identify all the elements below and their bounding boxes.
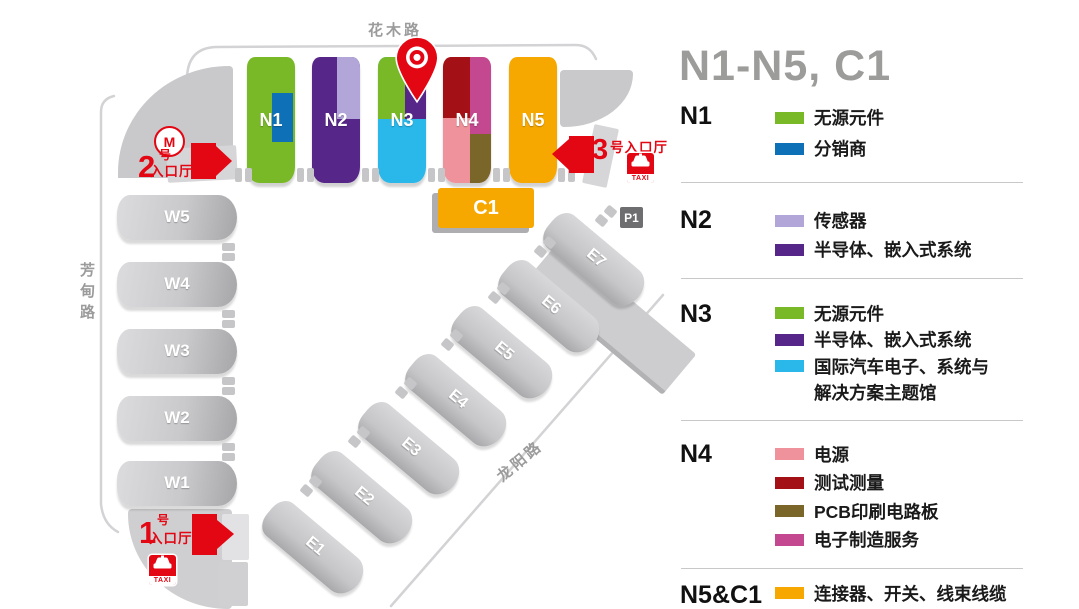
connector-tab xyxy=(245,168,252,182)
legend-items: 连接器、开关、线束线缆 xyxy=(775,581,1025,605)
connector-tab xyxy=(503,168,510,182)
legend-swatch-magenta xyxy=(775,534,804,546)
legend-hall-label: N5&C1 xyxy=(680,581,762,609)
legend-item: 传感器 xyxy=(775,206,1025,235)
taxi-label: TAXI xyxy=(149,576,176,585)
legend-swatch-darkred xyxy=(775,477,804,489)
connector-tab xyxy=(493,168,500,182)
legend-item-label: 分销商 xyxy=(814,136,867,161)
legend-hall-label: N3 xyxy=(680,300,712,329)
legend-item: 半导体、嵌入式系统 xyxy=(775,327,1025,354)
connector-tab xyxy=(222,253,235,261)
legend-item-label: 无源元件 xyxy=(814,301,884,326)
hall-e1-label: E1 xyxy=(264,503,364,591)
entrance2-hall-text: 入口厅 xyxy=(150,165,194,179)
connector-tab xyxy=(235,168,242,182)
legend-swatch-green xyxy=(775,112,804,124)
legend-item-label: 连接器、开关、线束线缆 xyxy=(814,581,1007,606)
legend-hall-label: N1 xyxy=(680,102,712,131)
legend-swatch-lightpurple xyxy=(775,215,804,227)
entrance2-suffix: 号 xyxy=(159,149,171,161)
legend-section-n2: N2传感器半导体、嵌入式系统 xyxy=(680,206,1025,264)
expo-map-page: 花木路 芳甸路 龙阳路 P1 C1 N1 N2 N3 N4 N5 xyxy=(0,0,1079,609)
hall-w1: W1 xyxy=(117,461,237,506)
legend-divider xyxy=(681,420,1023,421)
hall-w3: W3 xyxy=(117,329,237,374)
legend-item: PCB印刷电路板 xyxy=(775,497,1025,526)
legend-divider xyxy=(681,568,1023,569)
legend-swatch-blue xyxy=(775,143,804,155)
legend-swatch-darkpurple xyxy=(775,244,804,256)
legend-section-n5-c1: N5&C1连接器、开关、线束线缆 xyxy=(680,581,1025,605)
taxi-icon-entrance1: TAXI xyxy=(149,555,176,585)
entrance1-arrow-right-icon xyxy=(192,512,237,556)
legend-item: 半导体、嵌入式系统 xyxy=(775,235,1025,264)
entrance2-arrow-right-icon xyxy=(191,142,236,180)
legend-item-label: 电子制造服务 xyxy=(814,527,919,552)
hall-w5: W5 xyxy=(117,195,237,240)
connector-tab xyxy=(299,484,313,498)
hall-w3-label: W3 xyxy=(117,341,237,361)
legend-swatch-darkpurple xyxy=(775,334,804,346)
legend-item: 测试测量 xyxy=(775,469,1025,498)
hall-w1-label: W1 xyxy=(117,473,237,493)
hall-w2-label: W2 xyxy=(117,408,237,428)
hall-w4-label: W4 xyxy=(117,274,237,294)
connector-tab xyxy=(297,168,304,182)
legend-items: 无源元件半导体、嵌入式系统国际汽车电子、系统与解决方案主题馆 xyxy=(775,300,1025,406)
connector-tab xyxy=(222,443,235,451)
page-title: N1-N5, C1 xyxy=(679,42,891,91)
legend-section-n3: N3无源元件半导体、嵌入式系统国际汽车电子、系统与解决方案主题馆 xyxy=(680,300,1025,406)
location-pin-icon xyxy=(395,36,439,104)
legend-item: 无源元件 xyxy=(775,102,1025,133)
hall-w2: W2 xyxy=(117,396,237,441)
entrance3-arrow-left-icon xyxy=(549,134,594,174)
legend-section-n1: N1无源元件分销商 xyxy=(680,102,1025,164)
connector-tab xyxy=(487,291,501,305)
legend-item: 国际汽车电子、系统与 xyxy=(775,353,1025,380)
legend-divider xyxy=(681,182,1023,183)
connector-tab xyxy=(307,168,314,182)
connector-tab xyxy=(594,214,608,228)
taxi-icon-entrance3: TAXI xyxy=(627,153,654,183)
legend-item: 电源 xyxy=(775,440,1025,469)
legend-item-label: 测试测量 xyxy=(814,470,884,495)
connector-tab xyxy=(222,453,235,461)
legend-hall-label: N2 xyxy=(680,206,712,235)
connector-tab xyxy=(394,386,408,400)
hall-w4: W4 xyxy=(117,262,237,307)
connector-tab xyxy=(222,310,235,318)
legend-item-label: 传感器 xyxy=(814,208,867,233)
entrance3-number: 3 xyxy=(592,136,608,165)
connector-tab xyxy=(347,434,361,448)
taxi-label: TAXI xyxy=(627,174,654,183)
connector-tab xyxy=(222,320,235,328)
connector-tab xyxy=(438,168,445,182)
legend-swatch-brown xyxy=(775,505,804,517)
connector-tab xyxy=(603,205,617,219)
legend-item: 分销商 xyxy=(775,133,1025,164)
legend-item-label: 半导体、嵌入式系统 xyxy=(814,237,972,262)
entrance1-suffix: 号 xyxy=(157,514,169,526)
legend-item: 电子制造服务 xyxy=(775,526,1025,555)
legend-item: 连接器、开关、线束线缆 xyxy=(775,581,1025,605)
legend-item-label: 解决方案主题馆 xyxy=(814,380,937,405)
legend-swatch-cyan xyxy=(775,360,804,372)
legend-item-continuation: 解决方案主题馆 xyxy=(814,380,1025,407)
connector-tab xyxy=(428,168,435,182)
connector-tab xyxy=(222,243,235,251)
entrance1-hall-text: 入口厅 xyxy=(149,532,193,546)
legend-items: 电源测试测量PCB印刷电路板电子制造服务 xyxy=(775,440,1025,554)
legend-items: 传感器半导体、嵌入式系统 xyxy=(775,206,1025,264)
legend-item-label: 无源元件 xyxy=(814,105,884,130)
connector-tab xyxy=(222,377,235,385)
legend-item-label: 国际汽车电子、系统与 xyxy=(814,354,989,379)
connector-tab xyxy=(362,168,369,182)
legend-item: 无源元件 xyxy=(775,300,1025,327)
legend-swatch-orange xyxy=(775,587,804,599)
legend-items: 无源元件分销商 xyxy=(775,102,1025,164)
connector-tab xyxy=(372,168,379,182)
legend-swatch-pink xyxy=(775,448,804,460)
connector-tab xyxy=(222,387,235,395)
legend-item-label: PCB印刷电路板 xyxy=(814,499,938,524)
connector-tab xyxy=(440,338,454,352)
legend-hall-label: N4 xyxy=(680,440,712,469)
legend-section-n4: N4电源测试测量PCB印刷电路板电子制造服务 xyxy=(680,440,1025,554)
legend-swatch-green xyxy=(775,307,804,319)
legend-item-label: 电源 xyxy=(814,442,849,467)
hall-w5-label: W5 xyxy=(117,207,237,227)
legend-divider xyxy=(681,278,1023,279)
legend-item-label: 半导体、嵌入式系统 xyxy=(814,327,972,352)
